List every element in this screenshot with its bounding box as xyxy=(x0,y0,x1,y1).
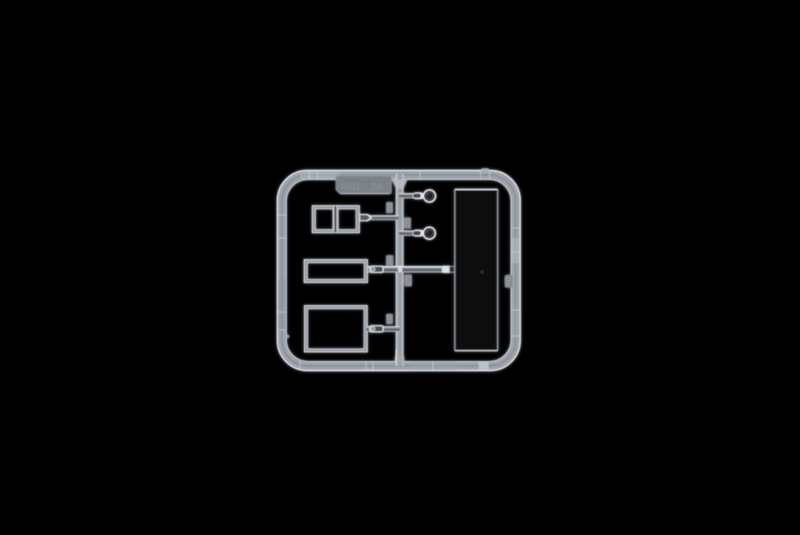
svg-text:2A: 2A xyxy=(371,182,384,193)
svg-text:3431: 3431 xyxy=(341,182,361,192)
